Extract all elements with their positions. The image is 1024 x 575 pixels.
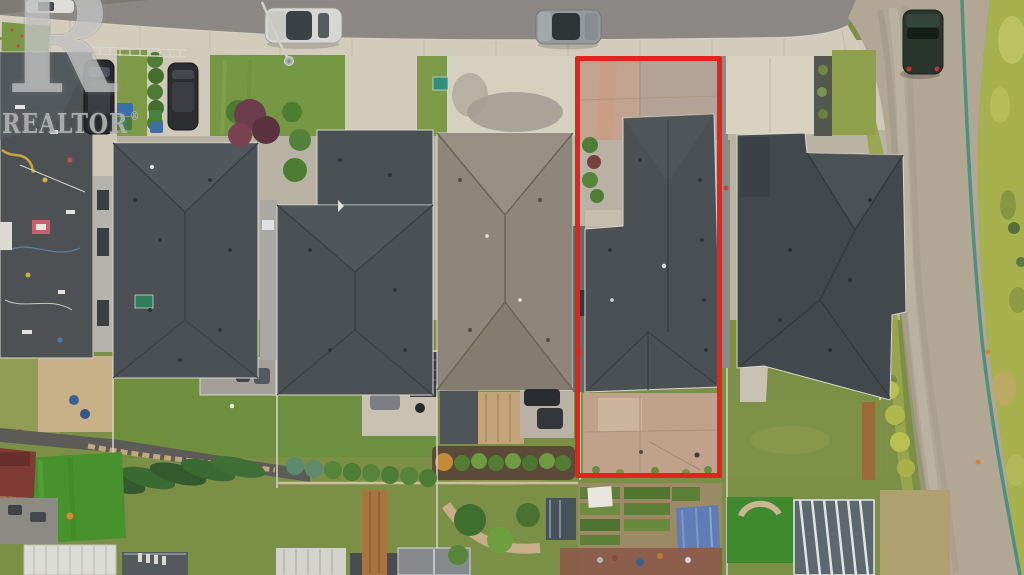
turf-yard	[727, 497, 793, 563]
house-1-under-construction	[0, 52, 93, 358]
sand-play-area	[38, 356, 116, 432]
house-2	[113, 143, 258, 378]
grey-sedan	[536, 10, 601, 50]
dark-sedan-driveway	[168, 63, 198, 130]
driveway-3	[345, 56, 417, 136]
side-strip-6	[722, 140, 730, 368]
ac-unit	[262, 220, 274, 230]
ribbed-roof	[276, 548, 346, 575]
blue-barrel	[69, 395, 79, 405]
blue-barrel	[80, 409, 90, 419]
maroon-tree	[228, 123, 252, 147]
wood-fence-right	[862, 402, 875, 480]
dirt-patch	[880, 490, 950, 575]
greenhouse	[794, 500, 874, 575]
brown-fence	[362, 490, 387, 575]
house-4-taupe	[437, 133, 573, 390]
lawn-5	[832, 50, 876, 135]
aerial-scene	[0, 0, 1024, 575]
driveway-5	[726, 56, 816, 134]
aerial-photo: R REALTOR®	[0, 0, 1024, 575]
subject-property-outline	[575, 56, 722, 478]
golf-ball	[230, 404, 234, 408]
black-suv-driveway	[84, 60, 114, 134]
teal-box	[433, 77, 448, 90]
orange-marker	[986, 350, 991, 355]
grey-patio	[0, 498, 58, 544]
orange-marker	[976, 460, 981, 465]
house-6	[722, 133, 906, 400]
dark-green-suv	[900, 10, 943, 79]
silver-suv	[265, 8, 342, 49]
white-car-edge	[26, 0, 74, 13]
white-panel	[587, 486, 612, 508]
lawn-4	[417, 56, 447, 136]
green-skylight	[135, 295, 153, 308]
